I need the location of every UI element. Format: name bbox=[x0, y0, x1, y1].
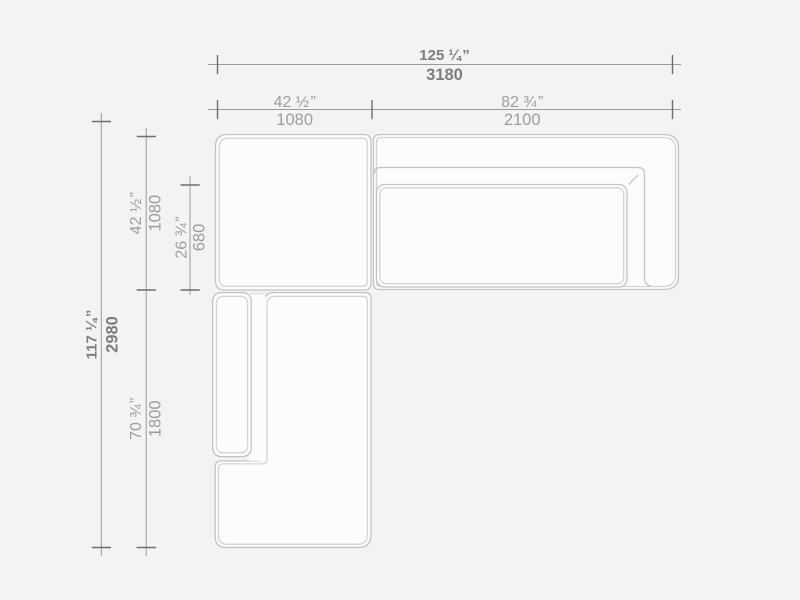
svg-text:70 ¾ ”: 70 ¾ ” bbox=[128, 398, 145, 440]
svg-text:1800: 1800 bbox=[146, 400, 164, 437]
svg-text:1080: 1080 bbox=[146, 195, 164, 232]
svg-text:42 ½ ”: 42 ½ ” bbox=[128, 192, 145, 234]
svg-text:1080: 1080 bbox=[276, 111, 313, 129]
svg-text:42 ½ ”: 42 ½ ” bbox=[274, 94, 316, 111]
svg-text:2100: 2100 bbox=[504, 111, 541, 129]
svg-text:3180: 3180 bbox=[426, 66, 463, 84]
svg-text:680: 680 bbox=[190, 224, 208, 252]
svg-text:82 ¾ ”: 82 ¾ ” bbox=[501, 94, 543, 111]
svg-text:26 ¾ ”: 26 ¾ ” bbox=[174, 216, 191, 258]
svg-text:125 ¼ ”: 125 ¼ ” bbox=[419, 47, 469, 64]
svg-text:2980: 2980 bbox=[104, 316, 122, 353]
svg-text:117 ¼ ”: 117 ¼ ” bbox=[84, 310, 101, 360]
